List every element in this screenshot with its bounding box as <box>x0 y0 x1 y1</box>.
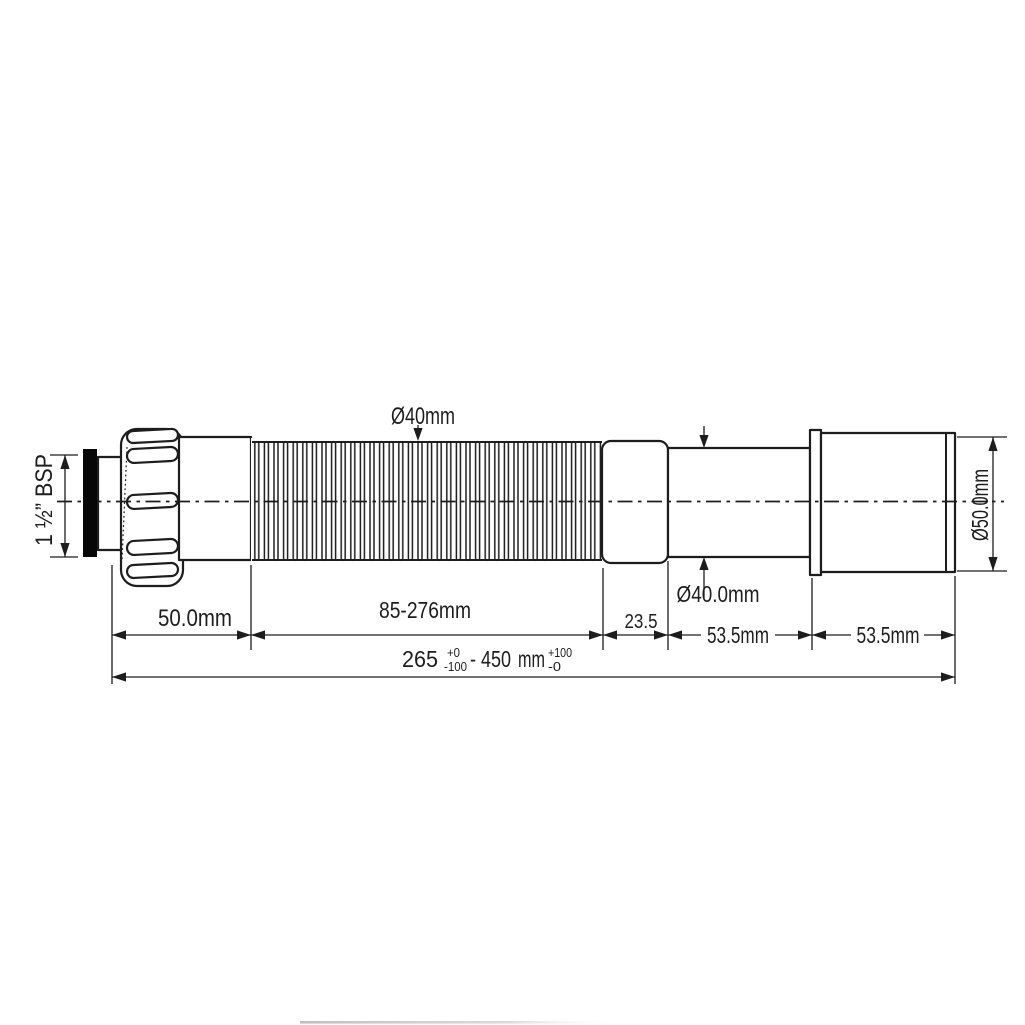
thread-size-label: 1 ½” BSP <box>31 454 58 546</box>
hose-length-label: 85-276mm <box>379 597 471 623</box>
nut-length-label: 50.0mm <box>158 605 232 632</box>
overall-unit: mm <box>518 646 545 672</box>
tube-diameter-label: Ø40.0mm <box>677 581 760 607</box>
bottom-edge-artifact <box>300 1021 622 1024</box>
hose-diameter-label: Ø40mm <box>391 403 455 430</box>
sleeve-length-label: 53.5mm <box>857 622 920 648</box>
compression-nut <box>121 429 183 586</box>
overall-min-tol-minus: -100 <box>444 659 467 674</box>
sealing-washer <box>83 449 97 557</box>
outlet-tube <box>668 448 810 557</box>
overall-max-value: - 450 <box>470 646 511 672</box>
overall-min-tol-plus: +0 <box>447 645 460 660</box>
collar-length-label: 23.5 <box>625 611 658 633</box>
hose-end-fitting <box>179 437 251 560</box>
technical-drawing-canvas: Ø40mm 1 ½” BSP Ø50.0mm 50.0mm 85-276mm 2… <box>0 0 1025 1025</box>
sleeve-diameter-label: Ø50.0mm <box>967 469 993 541</box>
overall-max-tol-plus: +100 <box>548 645 572 660</box>
end-sleeve <box>810 430 955 575</box>
overall-min-value: 265 <box>402 646 438 672</box>
overall-max-tol-minus: -0 <box>548 659 561 674</box>
tube-length-label: 53.5mm <box>707 622 769 648</box>
flexible-pipe-diagram: Ø40mm 1 ½” BSP Ø50.0mm 50.0mm 85-276mm 2… <box>0 0 1025 1025</box>
